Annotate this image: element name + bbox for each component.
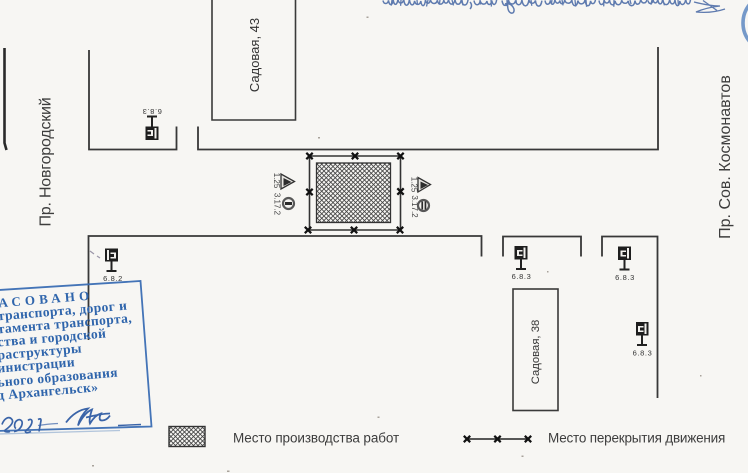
svg-text:1.25: 1.25 (409, 177, 418, 193)
svg-text:6.8.3: 6.8.3 (512, 272, 532, 281)
svg-text:6.8.3: 6.8.3 (615, 273, 635, 282)
svg-text:Место производства работ: Место производства работ (233, 431, 399, 446)
svg-text:6.8.3: 6.8.3 (633, 349, 653, 358)
svg-text:6.8.2: 6.8.2 (103, 274, 123, 283)
svg-text:1.25: 1.25 (272, 173, 281, 189)
svg-text:Место перекрытия движения: Место перекрытия движения (548, 431, 725, 446)
svg-text:6.8.3: 6.8.3 (142, 107, 162, 116)
svg-text:3.17.2: 3.17.2 (272, 193, 281, 216)
svg-text:Пр. Сов. Космонавтов: Пр. Сов. Космонавтов (717, 75, 734, 239)
svg-text:Садовая, 43: Садовая, 43 (247, 18, 262, 92)
svg-text:Пр. Новгородский: Пр. Новгородский (38, 97, 55, 226)
svg-text:Садовая, 38: Садовая, 38 (530, 320, 542, 385)
